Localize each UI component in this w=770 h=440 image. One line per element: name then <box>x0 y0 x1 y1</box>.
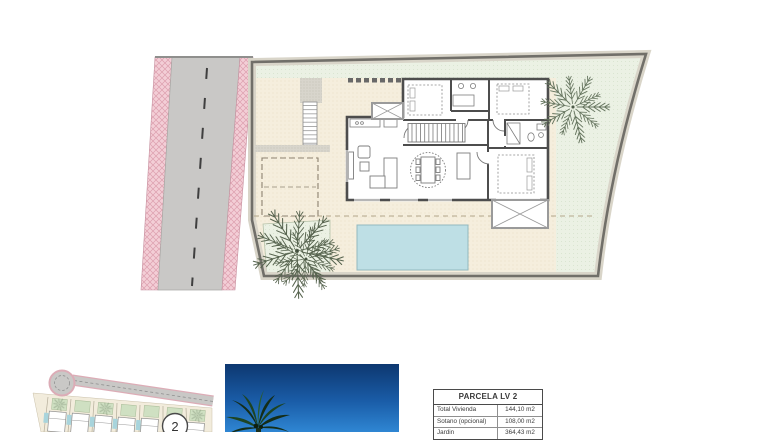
cul-de-sac <box>50 371 75 396</box>
plot-2-marker: 2 <box>163 414 188 433</box>
street <box>141 57 253 290</box>
site-map: 2 <box>33 371 213 433</box>
photo-sky <box>225 364 399 432</box>
staircase <box>408 124 465 143</box>
plot <box>246 54 646 307</box>
table-row-value: 108,00 m2 <box>498 417 542 428</box>
photo <box>225 364 399 432</box>
table-title: PARCELA LV 2 <box>434 390 542 405</box>
pool <box>357 225 468 270</box>
table-row-value: 364,43 m2 <box>498 428 542 439</box>
plan-canvas: 2 <box>0 0 770 432</box>
table-row-label: Total Vivienda <box>434 405 498 416</box>
dining-table <box>421 157 435 183</box>
void-box-bottom-right <box>492 200 548 228</box>
entrance-band <box>254 145 330 152</box>
table-row-value: 144,10 m2 <box>498 405 542 416</box>
tv-bench <box>349 152 354 179</box>
table-row: Jardin 364,43 m2 <box>434 428 542 439</box>
plot-2-marker-label: 2 <box>171 419 178 432</box>
table-row: Sotano (opcional) 108,00 m2 <box>434 417 542 429</box>
kitchen <box>350 119 397 127</box>
page: 2 PARCELA LV 2 Total Vivienda 144,10 <box>0 0 770 432</box>
table-row-label: Sotano (opcional) <box>434 417 498 428</box>
sideboard <box>457 153 470 179</box>
void-box-top-left <box>372 103 403 119</box>
entrance-path <box>300 78 322 103</box>
entrance-steps <box>303 102 317 145</box>
table-row-label: Jardin <box>434 428 498 439</box>
table-row: Total Vivienda 144,10 m2 <box>434 405 542 417</box>
parking-area <box>262 158 318 216</box>
armchair <box>358 146 370 158</box>
sofa <box>384 158 397 188</box>
